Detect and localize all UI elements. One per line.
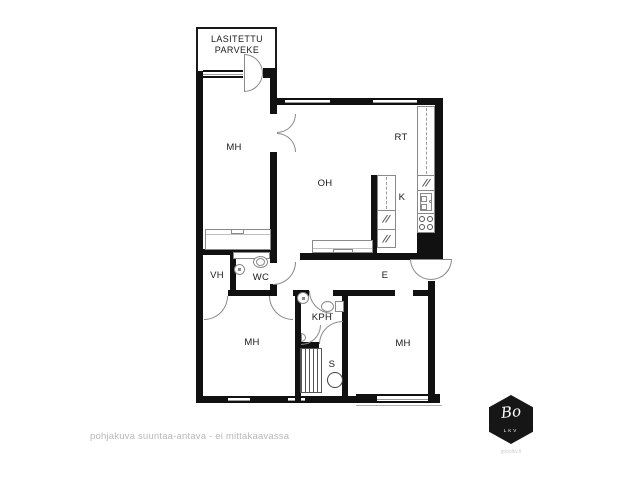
stove-burner bbox=[419, 216, 425, 222]
wall bbox=[263, 68, 277, 78]
counter-divider bbox=[417, 213, 435, 214]
door-arc-bedroom-left bbox=[269, 296, 293, 320]
bathroom-toilet bbox=[321, 301, 334, 312]
wall bbox=[275, 27, 277, 73]
wall-left-exterior bbox=[196, 71, 203, 403]
room-label-closet: VH bbox=[210, 270, 224, 281]
cabinet-divider bbox=[377, 229, 396, 230]
wall bbox=[270, 78, 277, 114]
kitchen-sink-drain bbox=[429, 200, 432, 203]
toilet-bowl-inner bbox=[256, 258, 265, 266]
window bbox=[203, 70, 243, 78]
stove-burner bbox=[427, 224, 433, 230]
wc-sink-tap bbox=[238, 268, 241, 271]
wall-right-exterior bbox=[428, 281, 435, 403]
window bbox=[285, 98, 330, 105]
sideboard-notch bbox=[333, 249, 353, 253]
cabinet-dashed-line bbox=[386, 177, 387, 209]
stove-burner bbox=[419, 224, 425, 230]
appliance-icon bbox=[381, 213, 392, 224]
door-arc-sauna bbox=[319, 321, 343, 344]
wardrobe-handle bbox=[231, 229, 244, 234]
counter-divider bbox=[417, 190, 435, 191]
upper-cabinet-dashed-line bbox=[426, 108, 427, 174]
sauna-stove bbox=[327, 372, 343, 388]
wall-top bbox=[330, 98, 373, 105]
room-label-entry: E bbox=[382, 270, 389, 281]
room-label-bedroom-left: MH bbox=[244, 337, 259, 348]
room-label-kitchen: K bbox=[399, 192, 406, 203]
brand-logo-script: Bo bbox=[500, 402, 522, 422]
wardrobe-line bbox=[206, 234, 270, 235]
wall bbox=[196, 27, 198, 73]
room-label-sauna: S bbox=[329, 359, 336, 370]
door-arc-double-upper bbox=[277, 114, 296, 133]
stove-burner bbox=[427, 216, 433, 222]
counter-divider bbox=[417, 175, 435, 176]
wall bbox=[228, 290, 273, 296]
brand-logo-sub: LKV bbox=[504, 428, 519, 433]
wall bbox=[196, 27, 277, 29]
wall-bottom bbox=[305, 396, 356, 403]
disclaimer-text: pohjakuva suuntaa-antava - ei mittakaava… bbox=[90, 431, 289, 442]
door-arc-wc bbox=[273, 262, 296, 285]
room-label-bathroom: KPH bbox=[312, 312, 332, 323]
kitchen-sink-basin bbox=[421, 196, 427, 202]
bathroom-toilet-tank bbox=[335, 301, 344, 312]
door-arc-double-lower bbox=[277, 133, 296, 152]
room-label-dining: RT bbox=[394, 132, 407, 143]
kitchen-sink-basin bbox=[421, 204, 427, 210]
wall-top bbox=[277, 98, 285, 105]
floor-plan-page: LASITETTU PARVEKE bbox=[0, 0, 640, 480]
door-arc-entry bbox=[410, 259, 452, 280]
wall-right-exterior bbox=[435, 98, 443, 258]
wall-bottom bbox=[196, 396, 228, 403]
wall bbox=[413, 290, 428, 296]
window-sill-line bbox=[356, 405, 442, 406]
room-label-bedroom-top: MH bbox=[226, 142, 241, 153]
window bbox=[373, 98, 417, 105]
wall bbox=[270, 152, 277, 250]
window bbox=[377, 394, 428, 403]
appliance-icon bbox=[381, 233, 392, 244]
room-label-balcony: LASITETTU PARVEKE bbox=[211, 34, 263, 56]
door-arc-closet bbox=[204, 296, 228, 320]
wall-bottom bbox=[356, 394, 377, 403]
wall-bottom bbox=[250, 396, 288, 403]
cabinet-divider bbox=[377, 210, 396, 211]
sauna-benches bbox=[300, 348, 322, 393]
door-arc-balcony bbox=[244, 54, 263, 92]
brand-website: gobolkv.fi bbox=[466, 449, 556, 455]
brand-logo: Bo LKV bbox=[489, 395, 533, 444]
window bbox=[228, 396, 250, 403]
appliance-icon bbox=[421, 177, 432, 188]
wall bbox=[348, 290, 395, 296]
room-label-living-room: OH bbox=[318, 178, 333, 189]
room-label-bedroom-right: MH bbox=[395, 338, 410, 349]
room-label-wc: WC bbox=[253, 272, 269, 283]
wall-bottom bbox=[428, 394, 440, 403]
bathroom-sink-tap bbox=[302, 297, 305, 300]
